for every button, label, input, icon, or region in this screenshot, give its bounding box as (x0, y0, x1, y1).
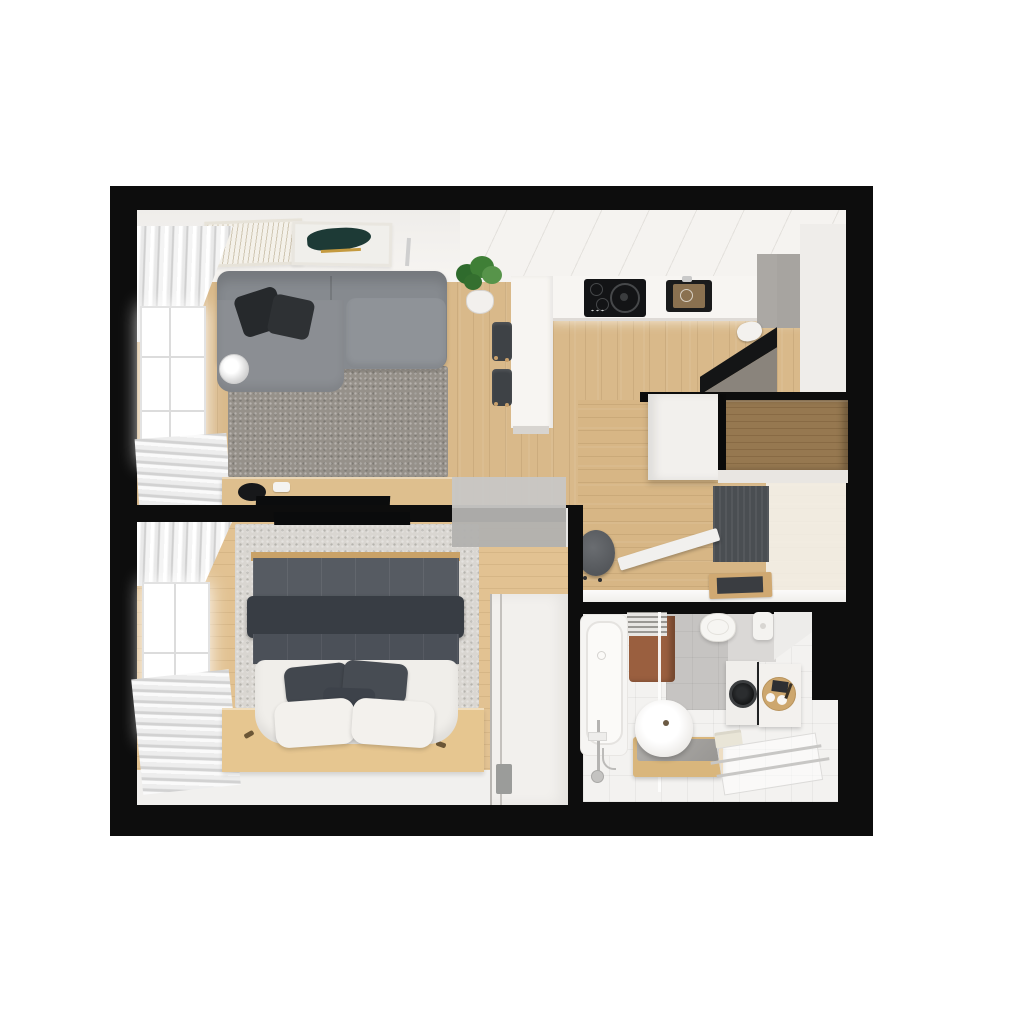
chair-leg (505, 358, 509, 362)
wardrobe-hinge (496, 764, 512, 794)
plant-leaves (482, 266, 502, 284)
floor-lamp (219, 354, 249, 384)
sink-drain (680, 289, 693, 302)
cistern (753, 612, 773, 640)
vessel-sink (635, 700, 693, 757)
bar-chair-1 (492, 322, 512, 361)
stool-foot (598, 578, 602, 582)
bathtub-drain (597, 651, 606, 660)
sofa-pillow-2 (266, 293, 315, 341)
tall-fridge-cabinet (757, 254, 801, 328)
frosted-glass-door-bottom (452, 508, 568, 547)
bathtub-basin (586, 621, 623, 745)
plant-leaves (464, 274, 482, 290)
window-mullion-h (142, 410, 204, 412)
kitchen-right-panel (800, 224, 846, 396)
stool-foot (583, 576, 587, 580)
counter-end-shadow (513, 426, 549, 434)
sofa-seat-cushion (346, 298, 446, 368)
kitchen-counter-left-arm (511, 276, 553, 428)
chair-leg (494, 356, 498, 360)
bar-chair-2 (492, 369, 512, 406)
door-sill (718, 470, 848, 483)
shower-head (591, 770, 604, 783)
cooktop-controls (590, 309, 606, 312)
bed-duvet-fold (247, 596, 464, 638)
shoe-tray-mat (717, 576, 764, 594)
plant-pot (466, 290, 494, 314)
kitchen-sink (666, 280, 712, 312)
tv-bedroom (274, 512, 410, 525)
hall-cabinet (648, 394, 718, 480)
chair-leg (505, 403, 509, 407)
chair-leg (494, 402, 498, 406)
burner-small-1 (590, 283, 603, 296)
hall-bright-floor-patch (766, 478, 846, 590)
frosted-glass-door-top (452, 477, 566, 508)
toilet-lid-line (707, 619, 729, 635)
entrance-door (726, 400, 848, 470)
art-gold-line (321, 248, 361, 253)
window-mullion-h (142, 356, 204, 358)
toilet (700, 613, 736, 642)
living-curtain-pleats (135, 433, 232, 511)
bed-pillow-white-2 (350, 697, 435, 749)
window-mullion-h (144, 652, 208, 654)
sink-tap-dot (663, 720, 669, 726)
faucet (682, 276, 692, 282)
washer-door (729, 680, 757, 708)
bed-pillow-white-1 (273, 697, 356, 748)
shower-shelf (588, 732, 607, 741)
cooktop (584, 279, 646, 317)
wardrobe (490, 594, 572, 805)
decor-item (273, 482, 290, 492)
flush-button (760, 623, 766, 629)
apartment-floorplan-render (0, 0, 1024, 1024)
doormat (713, 486, 769, 562)
shoe-tray (709, 572, 773, 599)
tray-cup (766, 693, 775, 702)
towel-radiator (627, 612, 667, 636)
wall-art-frame-teal (292, 221, 393, 267)
toiletry-tray (762, 677, 796, 711)
potted-plant (456, 256, 504, 314)
burner-large-center (620, 293, 628, 301)
